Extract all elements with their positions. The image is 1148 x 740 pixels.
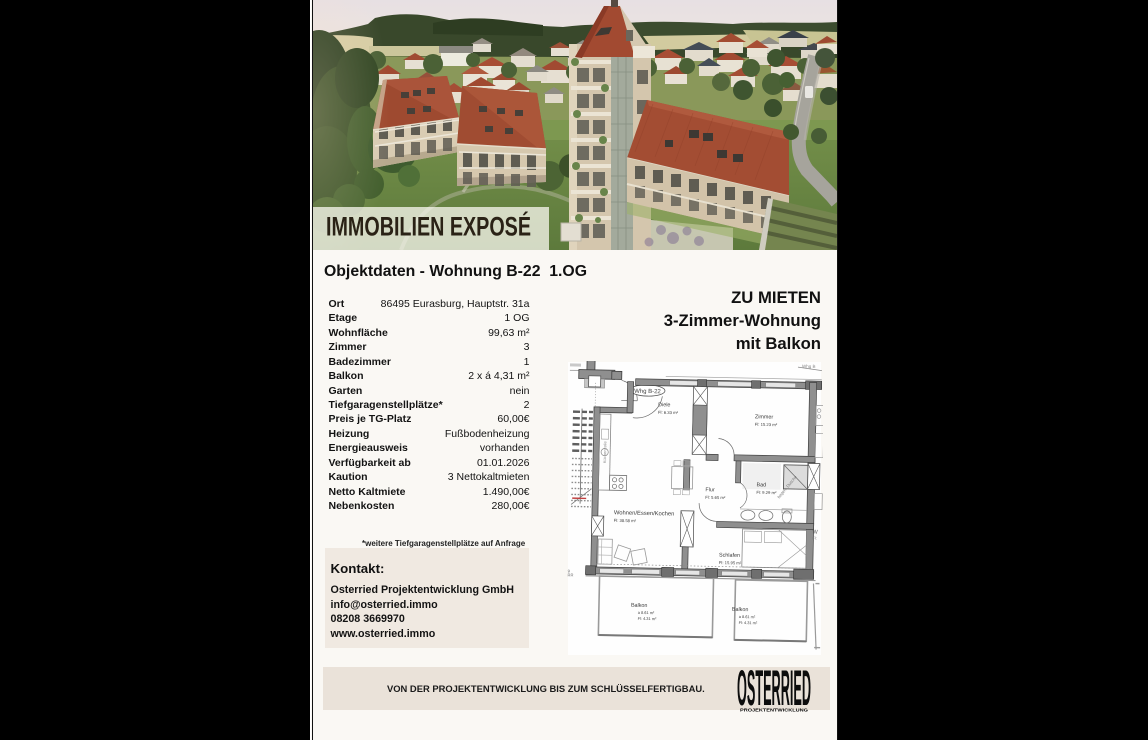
svg-text:Zimmer: Zimmer [755, 414, 774, 420]
svg-text:Flur: Flur [705, 487, 715, 493]
svg-text:Küchenzeile: Küchenzeile [602, 440, 607, 463]
svg-text:Balkon: Balkon [631, 603, 648, 609]
svg-text:Fl: 9.29 m²: Fl: 9.29 m² [756, 490, 777, 495]
svg-text:a 8.61 m²: a 8.61 m² [739, 614, 756, 619]
svg-text:Diele: Diele [658, 402, 670, 408]
svg-text:Fl: 4.31 m²: Fl: 4.31 m² [739, 620, 758, 625]
svg-text:Wohnen/Essen/Kochen: Wohnen/Essen/Kochen [614, 510, 675, 517]
svg-text:IMMOBILIEN EXPOSÉ: IMMOBILIEN EXPOSÉ [326, 211, 531, 242]
svg-text:Fl:: Fl: [812, 535, 817, 540]
svg-text:Fl: 5.65 m²: Fl: 5.65 m² [705, 495, 726, 500]
svg-text:PROJEKTENTWICKLUNG: PROJEKTENTWICKLUNG [740, 708, 809, 713]
svg-text:Fl: 4.31 m²: Fl: 4.31 m² [638, 616, 657, 621]
svg-text:Fl: 15.95 m²: Fl: 15.95 m² [719, 560, 742, 565]
svg-text:Fl: 15.23 m²: Fl: 15.23 m² [755, 422, 778, 427]
svg-text:RR: RR [568, 572, 574, 577]
svg-text:Fl: 6.33 m²: Fl: 6.33 m² [658, 410, 679, 415]
svg-text:Whg B: Whg B [802, 364, 816, 369]
svg-text:a 8.61 m²: a 8.61 m² [638, 610, 655, 615]
svg-text:Bad: Bad [756, 482, 766, 488]
svg-text:Whg B-22: Whg B-22 [634, 389, 661, 396]
svg-text:Balkon: Balkon [732, 607, 749, 613]
svg-text:Schlafen: Schlafen [719, 553, 740, 559]
svg-text:Fl: 38.58 m²: Fl: 38.58 m² [614, 518, 637, 523]
